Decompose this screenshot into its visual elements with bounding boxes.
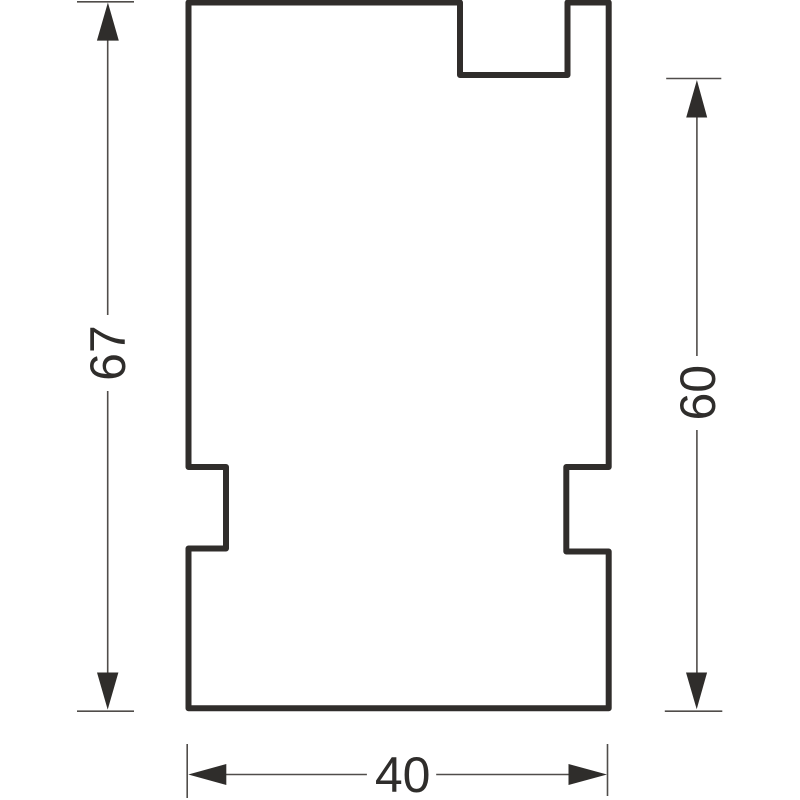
svg-text:67: 67 — [80, 325, 136, 381]
svg-text:60: 60 — [670, 365, 726, 421]
svg-text:40: 40 — [375, 747, 431, 800]
